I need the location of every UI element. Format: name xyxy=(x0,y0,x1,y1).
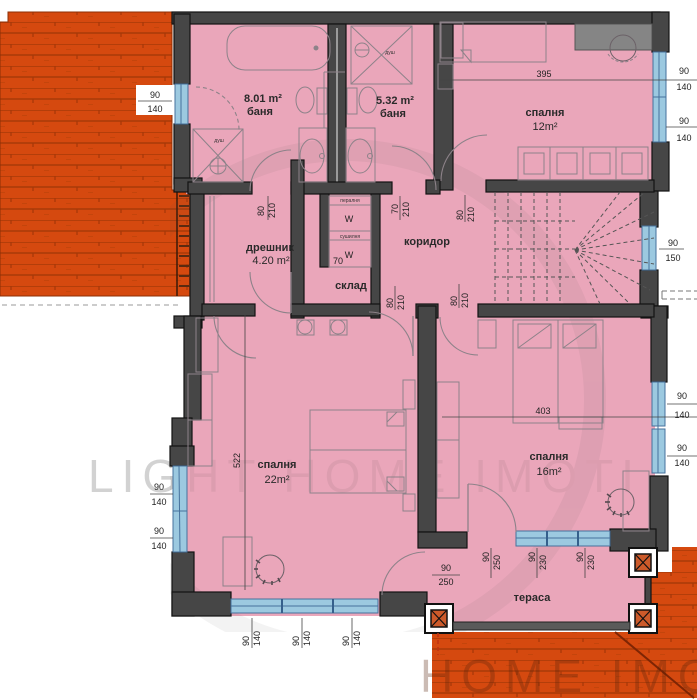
svg-text:80: 80 xyxy=(385,298,395,308)
svg-text:90: 90 xyxy=(154,482,164,492)
svg-text:140: 140 xyxy=(147,104,162,114)
svg-text:250: 250 xyxy=(438,577,453,587)
svg-text:90: 90 xyxy=(668,238,678,248)
svg-text:90: 90 xyxy=(575,552,585,562)
svg-text:душ: душ xyxy=(385,50,394,56)
svg-text:90: 90 xyxy=(241,636,251,646)
svg-text:сушилня: сушилня xyxy=(340,234,360,240)
svg-text:230: 230 xyxy=(538,555,548,570)
svg-text:пералня: пералня xyxy=(340,198,360,204)
svg-text:140: 140 xyxy=(252,631,262,646)
svg-text:спалня: спалня xyxy=(530,451,569,463)
svg-text:HOME IMOTI: HOME IMOTI xyxy=(420,650,697,700)
svg-text:90: 90 xyxy=(679,66,689,76)
svg-text:90: 90 xyxy=(341,636,351,646)
svg-text:90: 90 xyxy=(441,563,451,573)
svg-text:140: 140 xyxy=(676,82,691,92)
svg-text:70: 70 xyxy=(333,256,343,266)
svg-text:коридор: коридор xyxy=(404,236,450,248)
svg-text:140: 140 xyxy=(674,458,689,468)
svg-text:90: 90 xyxy=(677,443,687,453)
svg-text:90: 90 xyxy=(291,636,301,646)
svg-text:8.01 m²: 8.01 m² xyxy=(244,93,282,105)
svg-text:4.20 m²: 4.20 m² xyxy=(252,255,290,267)
svg-text:250: 250 xyxy=(492,555,502,570)
svg-text:22m²: 22m² xyxy=(264,474,289,486)
svg-text:403: 403 xyxy=(535,406,550,416)
svg-text:80: 80 xyxy=(449,296,459,306)
svg-text:210: 210 xyxy=(401,202,411,217)
svg-text:140: 140 xyxy=(302,631,312,646)
svg-text:80: 80 xyxy=(455,210,465,220)
svg-text:90: 90 xyxy=(154,526,164,536)
svg-text:80: 80 xyxy=(256,206,266,216)
svg-text:522: 522 xyxy=(232,453,242,468)
svg-text:230: 230 xyxy=(586,555,596,570)
svg-text:спалня: спалня xyxy=(258,459,297,471)
svg-text:тераса: тераса xyxy=(514,592,552,604)
svg-text:90: 90 xyxy=(481,552,491,562)
svg-text:W: W xyxy=(345,214,354,224)
svg-text:210: 210 xyxy=(396,295,406,310)
svg-text:140: 140 xyxy=(674,410,689,420)
svg-text:баня: баня xyxy=(247,106,273,118)
svg-text:90: 90 xyxy=(527,552,537,562)
svg-text:210: 210 xyxy=(460,293,470,308)
svg-text:дрешник: дрешник xyxy=(246,242,294,254)
svg-text:склад: склад xyxy=(335,280,367,292)
svg-text:140: 140 xyxy=(676,133,691,143)
svg-text:90: 90 xyxy=(677,391,687,401)
svg-text:90: 90 xyxy=(150,90,160,100)
svg-text:баня: баня xyxy=(380,108,406,120)
svg-text:70: 70 xyxy=(390,204,400,214)
svg-text:16m²: 16m² xyxy=(536,466,561,478)
svg-text:140: 140 xyxy=(151,497,166,507)
svg-text:12m²: 12m² xyxy=(532,121,557,133)
svg-text:спалня: спалня xyxy=(526,107,565,119)
svg-text:210: 210 xyxy=(466,207,476,222)
svg-text:140: 140 xyxy=(352,631,362,646)
svg-text:W: W xyxy=(345,250,354,260)
svg-text:150: 150 xyxy=(665,253,680,263)
svg-text:5.32 m²: 5.32 m² xyxy=(376,95,414,107)
svg-text:90: 90 xyxy=(679,116,689,126)
svg-text:душ: душ xyxy=(214,138,223,144)
svg-text:210: 210 xyxy=(267,203,277,218)
svg-text:140: 140 xyxy=(151,541,166,551)
svg-text:395: 395 xyxy=(536,69,551,79)
